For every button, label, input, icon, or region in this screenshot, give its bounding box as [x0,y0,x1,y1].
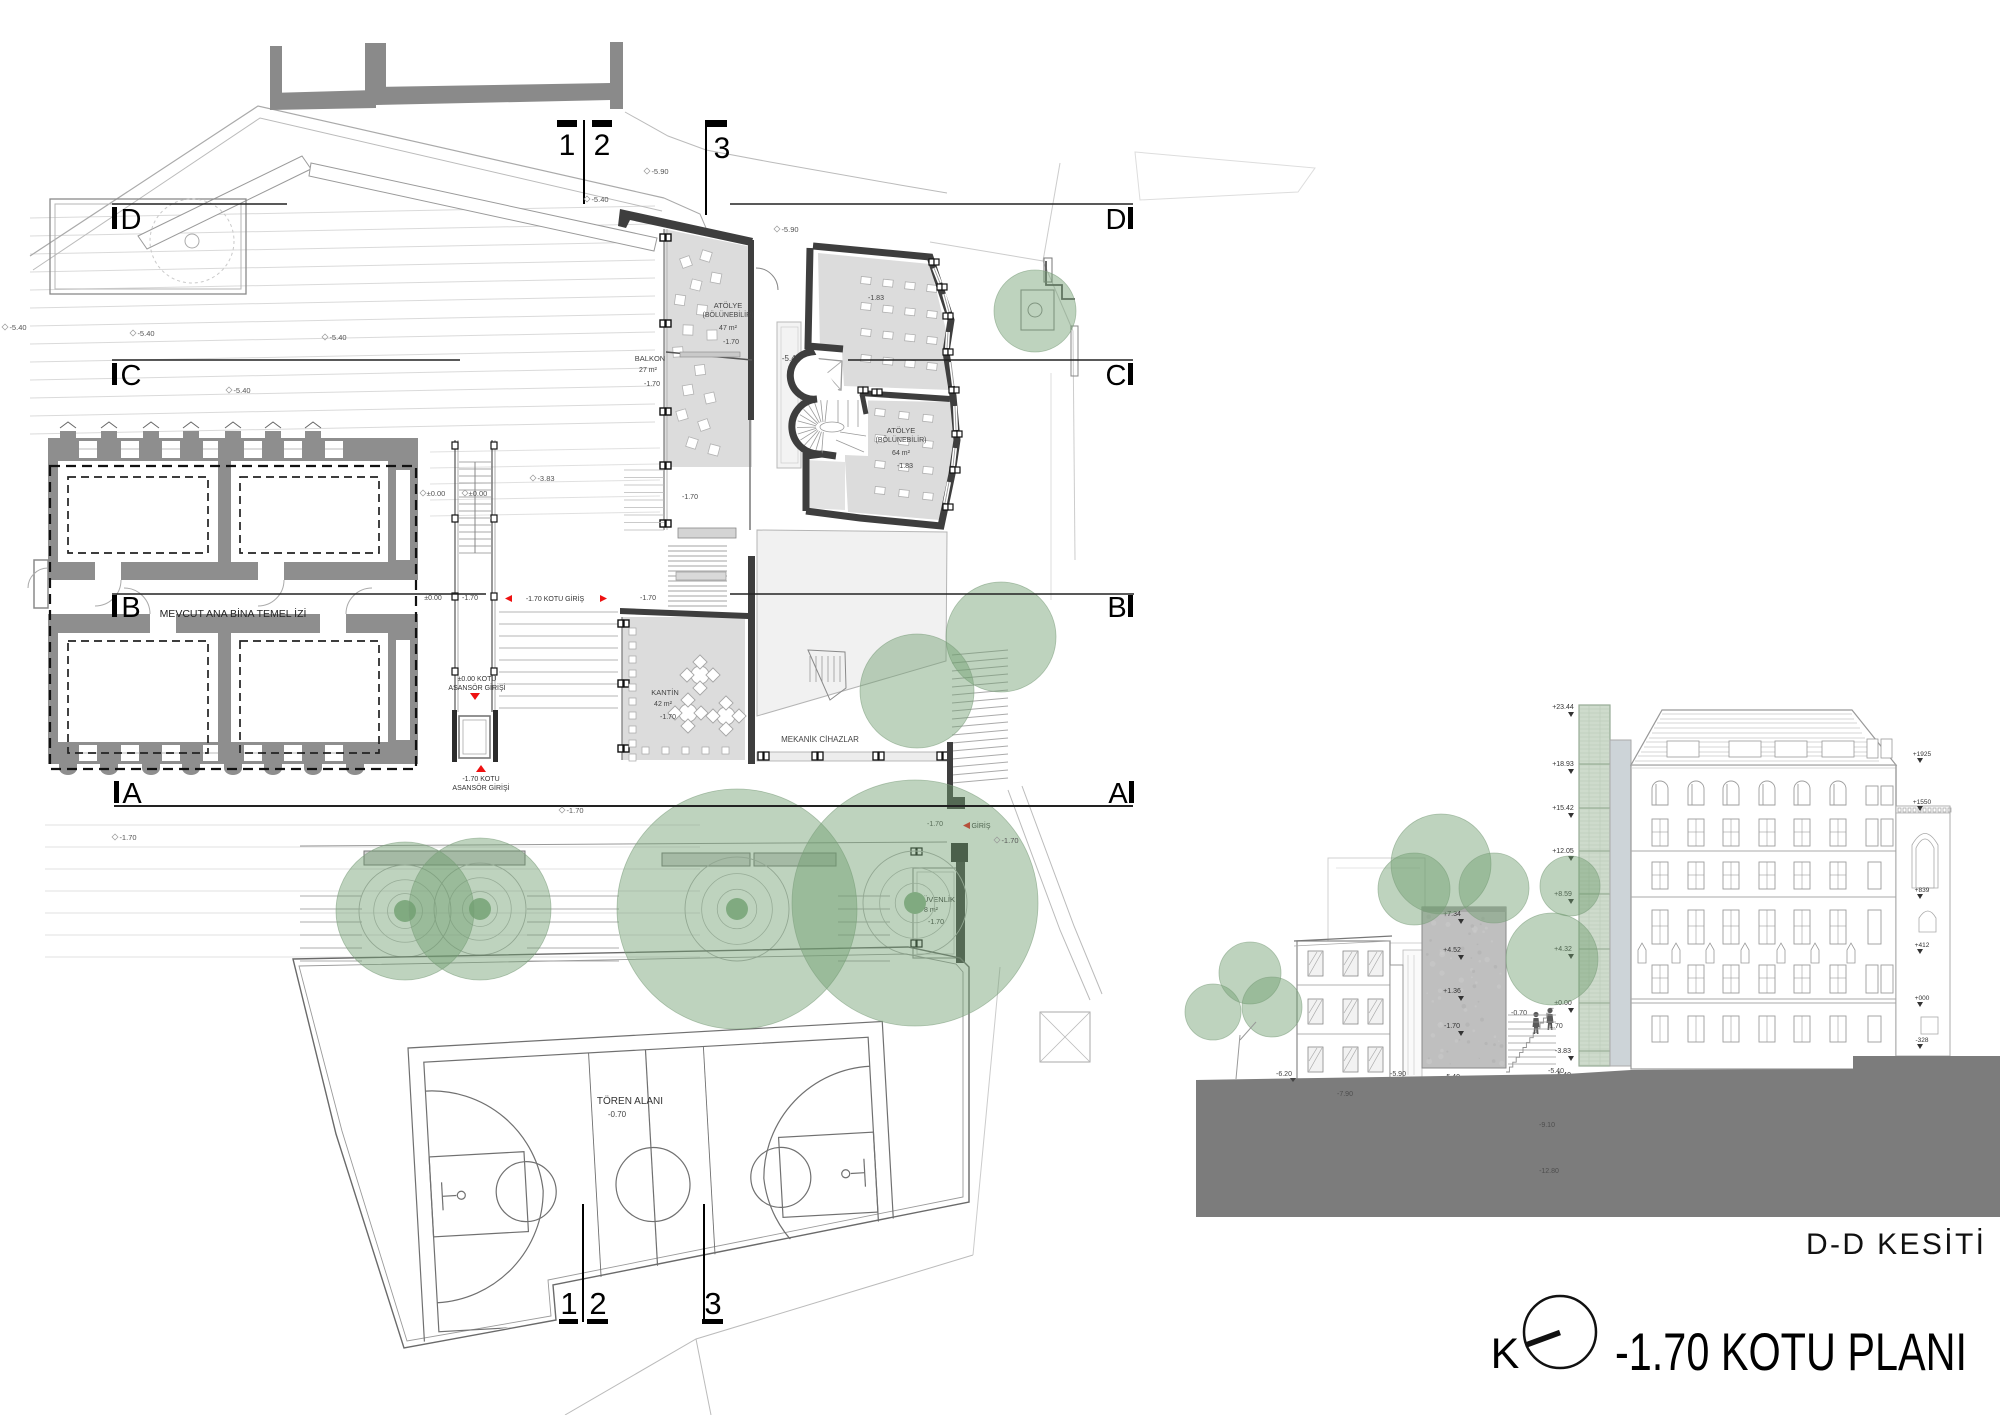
svg-text:+15.42: +15.42 [1552,805,1574,812]
svg-text:-1.70: -1.70 [1444,1023,1460,1030]
svg-text:-1.70: -1.70 [119,833,136,842]
svg-text:MEVCUT ANA BİNA TEMEL İZİ: MEVCUT ANA BİNA TEMEL İZİ [160,607,307,620]
svg-text:-1.70: -1.70 [723,339,739,346]
svg-text:-0.70: -0.70 [608,1110,627,1119]
svg-text:B: B [121,592,140,624]
svg-text:-1.70: -1.70 [644,381,660,388]
svg-text:3: 3 [714,132,731,165]
svg-text:D: D [121,204,142,236]
svg-text:A: A [122,778,142,810]
svg-text:2: 2 [594,129,611,162]
svg-text:-5.90: -5.90 [1390,1071,1406,1078]
svg-text:27 m²: 27 m² [639,367,658,374]
svg-text:D: D [1106,204,1127,236]
svg-text:C: C [121,360,142,392]
svg-text:(BÖLÜNEBİLİR): (BÖLÜNEBİLİR) [703,310,754,319]
svg-text:-1.83: -1.83 [868,295,884,302]
svg-text:BALKON: BALKON [635,354,665,363]
svg-text:1: 1 [559,129,576,162]
svg-text:ATÖLYE: ATÖLYE [887,426,915,435]
svg-text:+23.44: +23.44 [1552,704,1574,711]
svg-text:3: 3 [704,1286,721,1321]
svg-text:B: B [1107,592,1126,624]
svg-text:-9.10: -9.10 [1539,1122,1555,1129]
svg-text:-5.40: -5.40 [1548,1068,1564,1075]
svg-text:TÖREN ALANI: TÖREN ALANI [597,1095,663,1107]
svg-text:47 m²: 47 m² [719,325,738,332]
svg-text:-3.83: -3.83 [537,474,554,483]
svg-text:A: A [1108,778,1128,810]
svg-text:MEKANİK CİHAZLAR: MEKANİK CİHAZLAR [781,735,859,744]
svg-text:-5.40: -5.40 [137,329,154,338]
svg-text:-1.83: -1.83 [897,463,913,470]
svg-text:ASANSÖR GİRİŞİ: ASANSÖR GİRİŞİ [448,683,505,692]
svg-text:-5.90: -5.90 [781,225,798,234]
svg-text:+12.05: +12.05 [1552,848,1574,855]
svg-text:+4.52: +4.52 [1443,947,1461,954]
svg-text:-1.70: -1.70 [566,806,583,815]
svg-text:-328: -328 [1915,1037,1928,1044]
svg-text:1: 1 [560,1286,577,1321]
svg-text:-1.70: -1.70 [660,714,676,721]
svg-text:+412: +412 [1915,942,1930,949]
svg-text:-1.70: -1.70 [640,595,656,602]
svg-text:-7.90: -7.90 [1337,1091,1353,1098]
svg-text:42 m²: 42 m² [654,701,673,708]
svg-text:-1.70: -1.70 [1001,836,1018,845]
svg-text:ASANSÖR GİRİŞİ: ASANSÖR GİRİŞİ [452,783,509,792]
svg-text:(BÖLÜNEBİLİR): (BÖLÜNEBİLİR) [876,435,927,444]
svg-text:-0.70: -0.70 [1511,1010,1527,1017]
svg-text:-5.90: -5.90 [651,167,668,176]
svg-text:-1.70 KOTU GİRİŞ: -1.70 KOTU GİRİŞ [526,594,585,603]
svg-text:-3.83: -3.83 [1555,1048,1571,1055]
svg-text:-6.20: -6.20 [1276,1071,1292,1078]
svg-text:+1925: +1925 [1913,751,1932,758]
svg-text:D-D KESİTİ: D-D KESİTİ [1806,1228,1984,1261]
svg-text:±0.00 KOTU: ±0.00 KOTU [458,676,497,683]
svg-text:+18.93: +18.93 [1552,761,1574,768]
svg-text:+839: +839 [1915,887,1930,894]
svg-text:KANTİN: KANTİN [651,688,679,697]
svg-text:K: K [1491,1330,1520,1378]
svg-text:+1.36: +1.36 [1443,988,1461,995]
svg-text:ATÖLYE: ATÖLYE [714,301,742,310]
svg-text:-1.70: -1.70 [462,595,478,602]
svg-text:-12.80: -12.80 [1539,1168,1559,1175]
svg-text:-5.40: -5.40 [9,323,26,332]
svg-text:+000: +000 [1915,995,1930,1002]
svg-text:±0.00: ±0.00 [469,489,488,498]
svg-text:-5.40: -5.40 [329,333,346,342]
svg-text:64 m²: 64 m² [892,450,911,457]
svg-text:-5.40: -5.40 [233,386,250,395]
svg-text:-1.70 KOTU: -1.70 KOTU [462,776,499,783]
svg-text:C: C [1106,360,1127,392]
svg-text:±0.00: ±0.00 [424,595,442,602]
svg-text:-5.40: -5.40 [591,195,608,204]
svg-text:-1.70 KOTU PLANI: -1.70 KOTU PLANI [1615,1323,1967,1382]
svg-text:±0.00: ±0.00 [427,489,446,498]
svg-text:2: 2 [589,1286,606,1321]
svg-text:-1.70: -1.70 [682,494,698,501]
svg-text:+1550: +1550 [1913,799,1932,806]
